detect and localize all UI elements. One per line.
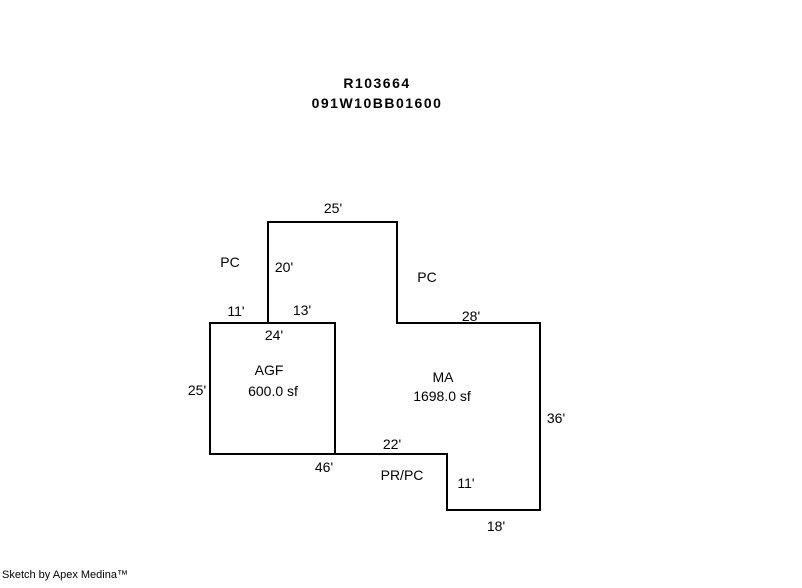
section-label-pc-left: PC	[220, 254, 239, 270]
dimension-label-ma-bottom: 22'	[383, 436, 401, 452]
sketch-software-credit: Sketch by Apex Medina™	[2, 569, 128, 581]
section-label-pc-right: PC	[417, 269, 436, 285]
dimension-label-step: 11'	[457, 475, 474, 491]
area-code-ma: MA	[433, 369, 454, 385]
dimension-label-ma-top: 28'	[462, 308, 480, 324]
sketch-page: R103664 091W10BB01600 25' PC 20' PC 11' …	[0, 0, 802, 588]
area-size-ma: 1698.0 sf	[413, 388, 471, 404]
area-code-agf: AGF	[255, 362, 284, 378]
dimension-label-agf-top-right: 13'	[293, 302, 311, 318]
dimension-label-bottom-right: 18'	[487, 518, 505, 534]
dimension-label-upper-wall: 20'	[275, 259, 293, 275]
building-sketch-drawing	[0, 0, 802, 588]
section-label-pr-pc: PR/PC	[381, 467, 424, 483]
area-size-agf: 600.0 sf	[248, 383, 298, 399]
dimension-label-ma-right: 36'	[547, 410, 565, 426]
dimension-label-bottom: 46'	[315, 459, 333, 475]
dimension-label-agf-left: 25'	[188, 382, 206, 398]
dimension-label-agf-top-inner: 24'	[265, 327, 283, 343]
dimension-label-top-width: 25'	[324, 200, 342, 216]
dimension-label-agf-top-left: 11'	[227, 303, 244, 319]
